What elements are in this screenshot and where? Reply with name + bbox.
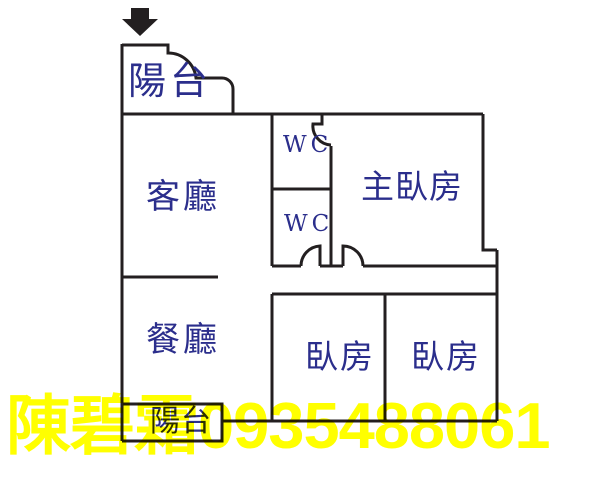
- room-label-wc-upper: WC: [283, 134, 332, 157]
- room-label-bedroom-right: 臥房: [411, 340, 481, 373]
- room-label-master-bedroom: 主臥房: [361, 170, 463, 203]
- door-arc-wc: [301, 246, 320, 266]
- room-label-dining-room: 餐廳: [146, 323, 220, 357]
- wall-master-right: [483, 114, 497, 250]
- entrance-arrow-icon: [122, 8, 158, 36]
- room-label-living-room: 客廳: [146, 180, 220, 214]
- watermark-agent-contact: 陳碧霜0935488061: [6, 393, 550, 458]
- room-label-wc-lower: WC: [284, 213, 333, 236]
- door-arc-master-bedroom: [343, 246, 363, 266]
- room-label-balcony-top: 陽台: [128, 62, 212, 100]
- floorplan: 陽台 客廳 WC WC 主臥房 餐廳 臥房 臥房 陽台 陳碧霜093548806…: [0, 0, 601, 480]
- room-label-bedroom-left: 臥房: [305, 340, 375, 373]
